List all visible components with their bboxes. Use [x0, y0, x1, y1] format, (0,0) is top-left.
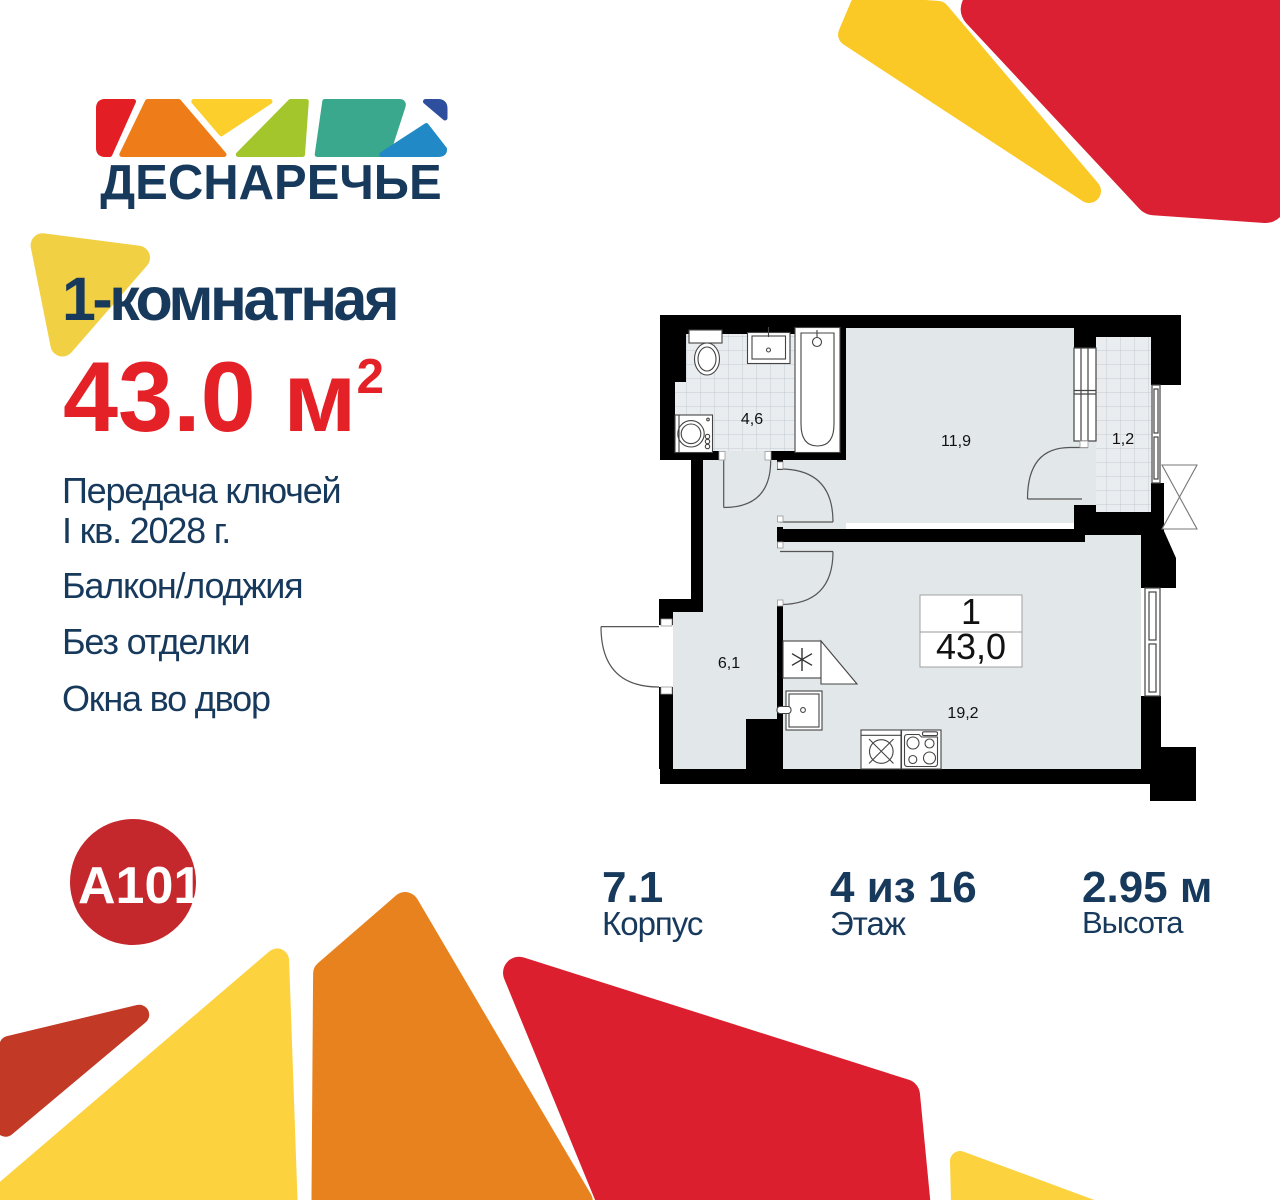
svg-text:6,1: 6,1	[718, 655, 740, 672]
svg-text:11,9: 11,9	[941, 433, 971, 450]
svg-text:19,2: 19,2	[947, 705, 978, 722]
svg-text:43,0: 43,0	[936, 626, 1006, 667]
svg-text:4,6: 4,6	[741, 411, 763, 428]
svg-text:1,2: 1,2	[1112, 431, 1134, 448]
